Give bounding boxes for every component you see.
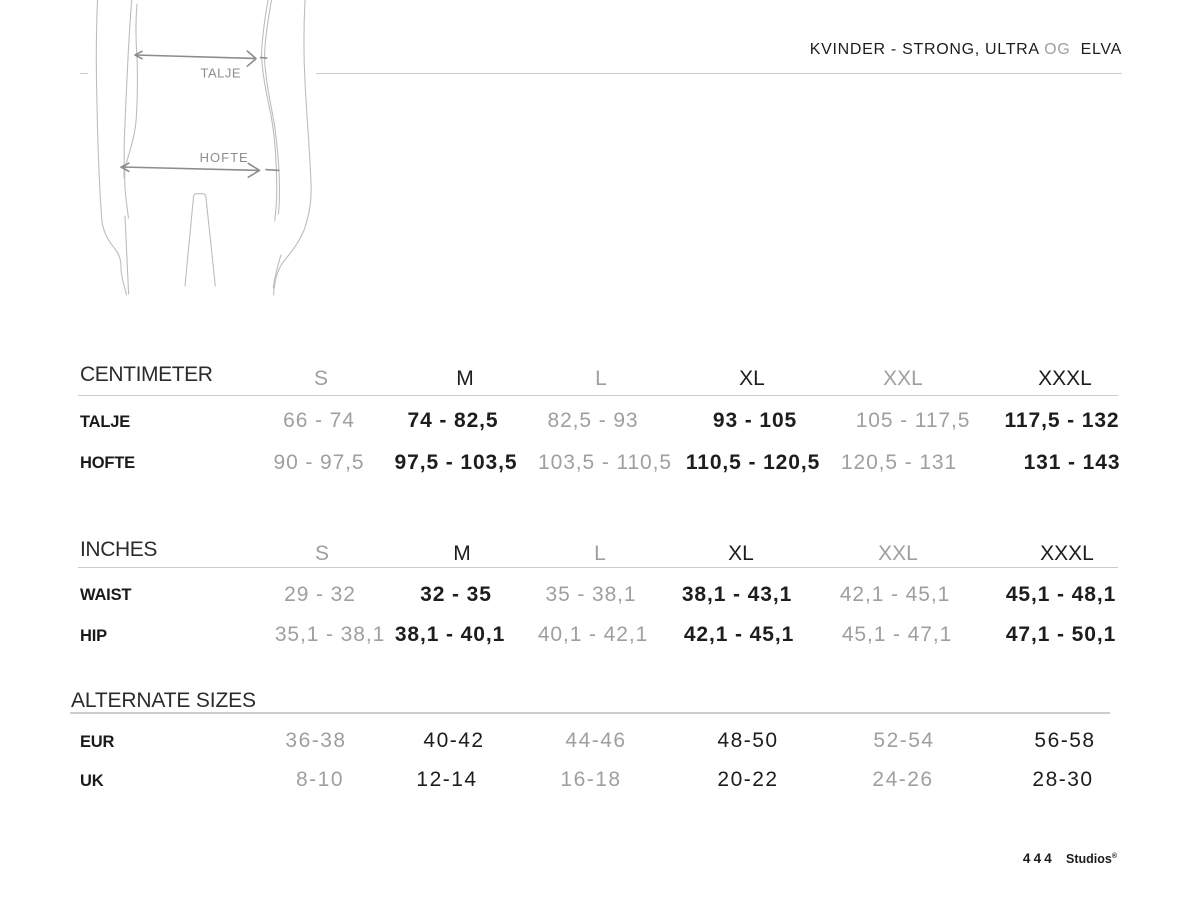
svg-text:HOFTE: HOFTE (200, 150, 249, 165)
svg-text:TALJE: TALJE (201, 66, 242, 81)
